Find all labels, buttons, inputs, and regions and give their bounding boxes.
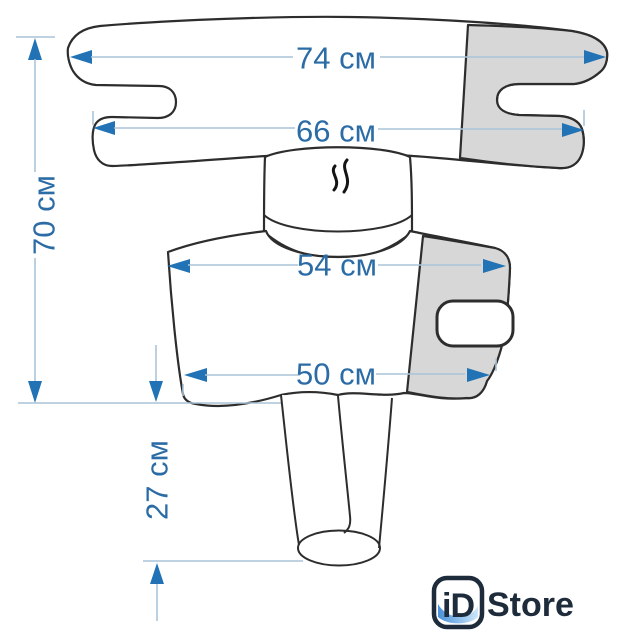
label-top-width: 74 см bbox=[296, 41, 376, 76]
label-hem-width: 50 см bbox=[296, 357, 376, 392]
dim-total-height: 70 см bbox=[16, 37, 62, 403]
logo-store-text: Store bbox=[487, 586, 574, 624]
brand-logo: iD Store bbox=[434, 578, 574, 627]
sleeve-opening bbox=[298, 531, 380, 566]
label-total-height: 70 см bbox=[27, 175, 62, 255]
label-collar-width: 66 см bbox=[296, 114, 376, 149]
garment-collar bbox=[264, 147, 412, 257]
logo-badge-text: iD bbox=[442, 587, 474, 625]
dimension-diagram: 70 см 74 см 66 см 54 см 50 см bbox=[0, 0, 631, 640]
garment-top-band-shaded bbox=[460, 25, 607, 168]
label-sleeve-length: 27 см bbox=[140, 440, 175, 520]
label-upper-body-width: 54 см bbox=[297, 248, 377, 283]
sleeve bbox=[281, 395, 392, 566]
side-tab bbox=[437, 301, 513, 346]
